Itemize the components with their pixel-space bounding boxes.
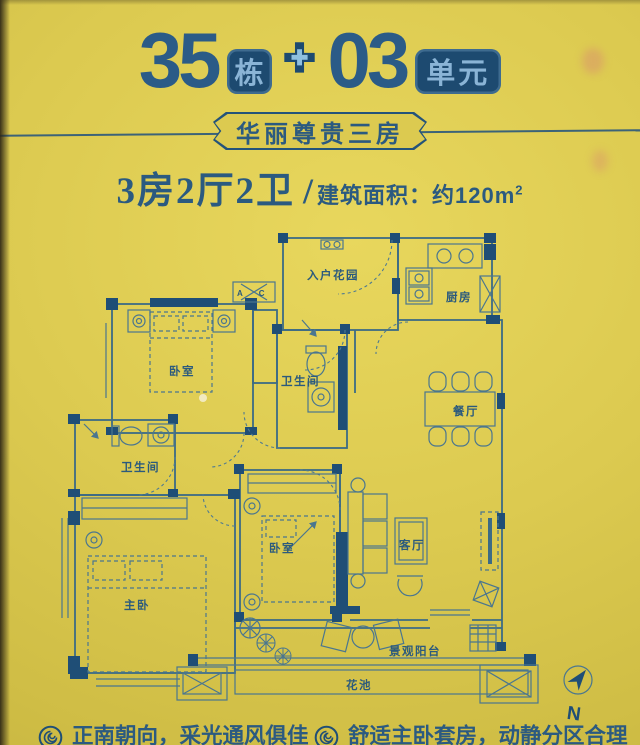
spiral-icon: [314, 725, 339, 745]
room-label-dining: 餐厅: [452, 404, 479, 418]
building-number: 35: [139, 26, 218, 95]
footnote-left-text: 正南朝向，采光通风俱佳: [72, 719, 309, 745]
spiral-icon: [38, 725, 63, 745]
ac-label: AC: [237, 289, 281, 298]
room-label-bath1: 卫生间: [281, 374, 320, 388]
layout-spec: 3房2厅2卫: [116, 171, 295, 212]
subtitle-text: 华丽尊贵三房: [215, 114, 425, 148]
photo-smudge: [592, 150, 608, 172]
entry-garden-fixture: [321, 240, 343, 249]
area-text: 建筑面积：约120m: [317, 183, 515, 208]
bedroom2-furniture: [244, 474, 336, 610]
plant: [275, 648, 291, 664]
room-label-bedroom1: 卧室: [169, 364, 195, 378]
spec-line: 3房2厅2卫/建筑面积：约120m2: [0, 160, 640, 214]
room-label-flower-bed: 花池: [346, 678, 372, 692]
plant: [257, 634, 275, 652]
footnote-right-text: 舒适主卧套房，动静分区合理: [348, 719, 628, 745]
door-arcs: [137, 240, 470, 615]
room-label-master: 主卧: [124, 598, 150, 612]
floorplan-poster: 35 栋 ✚ ✚ 03 单元 华丽尊贵三房 3房2厅2卫/建筑面积：约120m2: [0, 0, 640, 745]
spec-slash: /: [303, 171, 313, 211]
plant: [240, 618, 260, 638]
building-badge: 栋: [227, 49, 272, 94]
room-label-entry-garden: 入户花园: [307, 268, 359, 282]
master-bedroom-furniture: [82, 498, 206, 672]
footnote-left: 正南朝向，采光通风俱佳: [38, 719, 309, 745]
unit-number: 03: [328, 26, 407, 95]
balcony-items: [240, 618, 496, 664]
bathroom2-fixtures: [84, 424, 174, 446]
plan-title: 35 栋 ✚ ✚ 03 单元: [0, 26, 640, 95]
room-label-bedroom2: 卧室: [269, 541, 295, 555]
floor-plan: AC: [40, 218, 600, 745]
photo-left-edge: [0, 0, 10, 745]
area-superscript: 2: [515, 183, 523, 198]
bathroom1-fixtures: [302, 320, 334, 412]
subtitle-plaque-border: 华丽尊贵三房: [213, 112, 427, 150]
bedroom1-furniture: [128, 310, 235, 402]
compass: N: [564, 665, 592, 725]
unit-badge: 单元: [415, 49, 501, 94]
plus-sign-inner: ✚: [281, 39, 319, 79]
photo-smudge: [582, 48, 604, 74]
room-label-living: 客厅: [398, 538, 425, 552]
room-label-balcony: 景观阳台: [388, 644, 441, 658]
room-label-bath2: 卫生间: [121, 460, 160, 474]
subtitle-plaque: 华丽尊贵三房: [213, 112, 427, 150]
room-label-kitchen: 厨房: [446, 290, 472, 304]
footnote-right: 舒适主卧套房，动静分区合理: [314, 719, 628, 745]
area-spec: 建筑面积：约120m2: [317, 183, 524, 208]
plus-sign: ✚ ✚: [281, 39, 319, 79]
photo-top-edge: [0, 0, 640, 5]
